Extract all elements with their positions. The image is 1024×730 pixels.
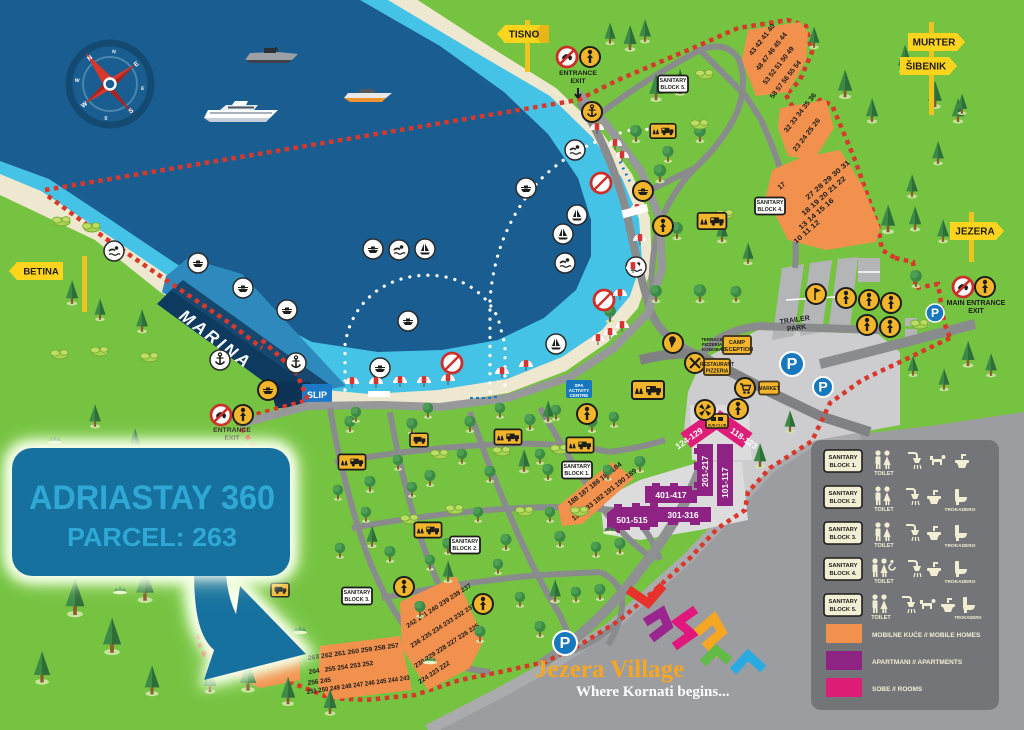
svg-text:P: P	[818, 379, 827, 395]
svg-text:BLOCK 4.: BLOCK 4.	[829, 571, 856, 577]
svg-text:SANITARY: SANITARY	[829, 455, 858, 461]
svg-text:SANITARY: SANITARY	[829, 491, 858, 497]
svg-text:Jezera Village: Jezera Village	[535, 656, 684, 683]
svg-text:301-316: 301-316	[667, 510, 698, 520]
svg-text:TOILET: TOILET	[874, 579, 894, 585]
svg-text:APARTMANI // APARTMENTS: APARTMANI // APARTMENTS	[872, 659, 963, 666]
svg-text:BLOCK 1.: BLOCK 1.	[564, 471, 590, 477]
svg-text:EXIT: EXIT	[968, 308, 984, 315]
svg-text:TOILET: TOILET	[874, 507, 894, 513]
svg-text:SOBE // ROOMS: SOBE // ROOMS	[872, 686, 923, 693]
svg-text:MURTER: MURTER	[913, 38, 957, 49]
svg-text:SANITARY: SANITARY	[757, 200, 784, 206]
svg-text:SANITARY: SANITARY	[452, 539, 479, 545]
svg-text:P: P	[787, 356, 798, 373]
svg-text:RECEPTION: RECEPTION	[721, 347, 753, 353]
svg-text:TROKADERO: TROKADERO	[945, 579, 976, 585]
svg-text:SANITARY: SANITARY	[829, 527, 858, 533]
svg-text:201-217: 201-217	[700, 456, 710, 487]
svg-text:SLIP: SLIP	[307, 390, 327, 400]
svg-text:TROKADERO: TROKADERO	[945, 507, 976, 513]
svg-text:EXIT: EXIT	[570, 78, 586, 85]
svg-text:TISNO: TISNO	[509, 30, 540, 41]
svg-text:TROKADERO: TROKADERO	[955, 615, 983, 620]
svg-text:SANITARY: SANITARY	[660, 78, 687, 84]
svg-text:BLOCK 4.: BLOCK 4.	[757, 207, 783, 213]
svg-text:MAIN ENTRANCE: MAIN ENTRANCE	[947, 300, 1006, 307]
svg-text:SANITARY: SANITARY	[564, 464, 591, 470]
svg-text:BLOCK 3.: BLOCK 3.	[344, 597, 370, 603]
svg-text:PIZZERIA: PIZZERIA	[706, 369, 729, 375]
svg-text:BLOCK 5.: BLOCK 5.	[660, 85, 686, 91]
svg-text:P: P	[560, 635, 571, 652]
svg-text:101-117: 101-117	[720, 467, 730, 498]
svg-text:ADRIASTAY 360: ADRIASTAY 360	[29, 479, 275, 517]
svg-text:SANITARY: SANITARY	[344, 590, 371, 596]
svg-text:TOILET: TOILET	[871, 615, 891, 621]
svg-text:ENTRANCE: ENTRANCE	[213, 427, 251, 434]
svg-text:PARCEL: 263: PARCEL: 263	[67, 522, 237, 552]
svg-text:P: P	[931, 306, 939, 320]
svg-text:TROKADERO: TROKADERO	[945, 543, 976, 549]
svg-text:TOILET: TOILET	[874, 543, 894, 549]
svg-text:RESTAURANT: RESTAURANT	[700, 362, 734, 368]
svg-text:BLOCK 1.: BLOCK 1.	[829, 463, 856, 469]
svg-text:401-417: 401-417	[655, 490, 686, 500]
svg-text:501-515: 501-515	[616, 515, 647, 525]
svg-text:BLOCK 5.: BLOCK 5.	[829, 607, 856, 613]
svg-text:SANITARY: SANITARY	[829, 599, 858, 605]
svg-text:TOILET: TOILET	[874, 471, 894, 477]
svg-text:SANITARY: SANITARY	[829, 563, 858, 569]
svg-text:KONOBA: KONOBA	[702, 347, 723, 352]
svg-text:JEZERA: JEZERA	[955, 227, 994, 238]
svg-text:BLOCK 3.: BLOCK 3.	[829, 535, 856, 541]
svg-text:BLOCK 2.: BLOCK 2.	[452, 546, 478, 552]
svg-text:CENTRE: CENTRE	[570, 393, 589, 398]
svg-text:BLOCK 2.: BLOCK 2.	[829, 499, 856, 505]
svg-text:SUN CLUB: SUN CLUB	[708, 424, 727, 428]
svg-text:MOBILNE KUĆE // MOBILE HOMES: MOBILNE KUĆE // MOBILE HOMES	[872, 630, 981, 639]
svg-text:CAMP: CAMP	[729, 340, 746, 346]
svg-text:MARKET: MARKET	[758, 386, 779, 392]
svg-text:ENTRANCE: ENTRANCE	[559, 70, 597, 77]
svg-text:BETINA: BETINA	[23, 267, 59, 278]
svg-text:Where Kornati begins...: Where Kornati begins...	[576, 684, 730, 700]
svg-text:ŠIBENIK: ŠIBENIK	[906, 60, 947, 73]
